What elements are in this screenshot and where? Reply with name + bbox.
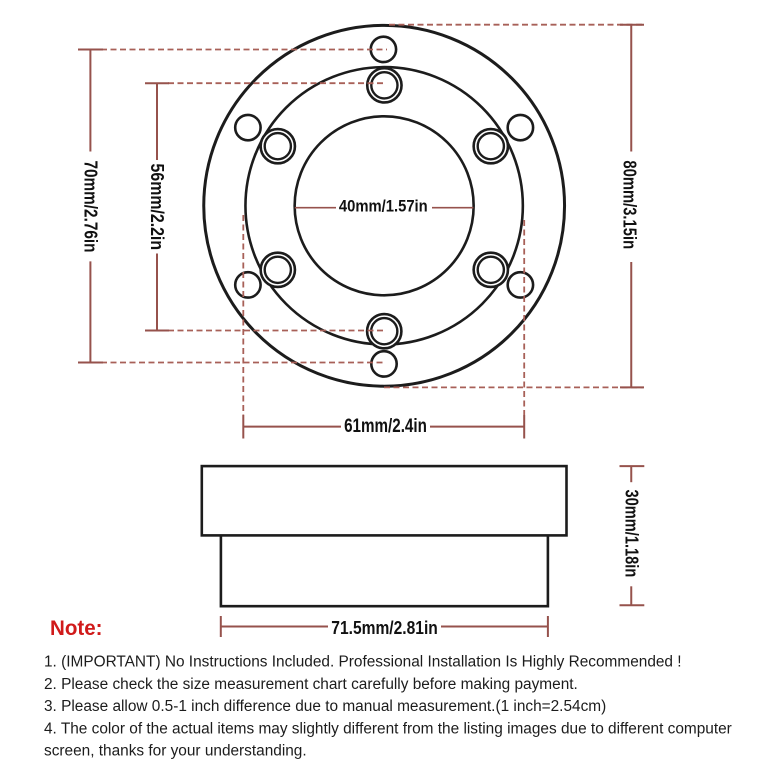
svg-text:70mm/2.76in: 70mm/2.76in [80, 161, 100, 253]
svg-text:4. The color of the actual ite: 4. The color of the actual items may sli… [44, 721, 732, 738]
svg-text:71.5mm/2.81in: 71.5mm/2.81in [331, 618, 438, 638]
svg-text:screen, thanks for your unders: screen, thanks for your understanding. [44, 743, 307, 760]
svg-text:61mm/2.4in: 61mm/2.4in [344, 415, 427, 437]
svg-text:40mm/1.57in: 40mm/1.57in [339, 197, 428, 216]
svg-text:3. Please allow 0.5-1 inch dif: 3. Please allow 0.5-1 inch difference du… [44, 698, 606, 715]
svg-text:2. Please check the size measu: 2. Please check the size measurement cha… [44, 676, 578, 693]
svg-text:80mm/3.15in: 80mm/3.15in [620, 160, 640, 249]
svg-text:56mm/2.2in: 56mm/2.2in [147, 164, 167, 251]
svg-text:1. (IMPORTANT) No Instructions: 1. (IMPORTANT) No Instructions Included.… [44, 654, 682, 671]
svg-text:30mm/1.18in: 30mm/1.18in [621, 490, 641, 578]
svg-text:Note:: Note: [50, 616, 103, 640]
